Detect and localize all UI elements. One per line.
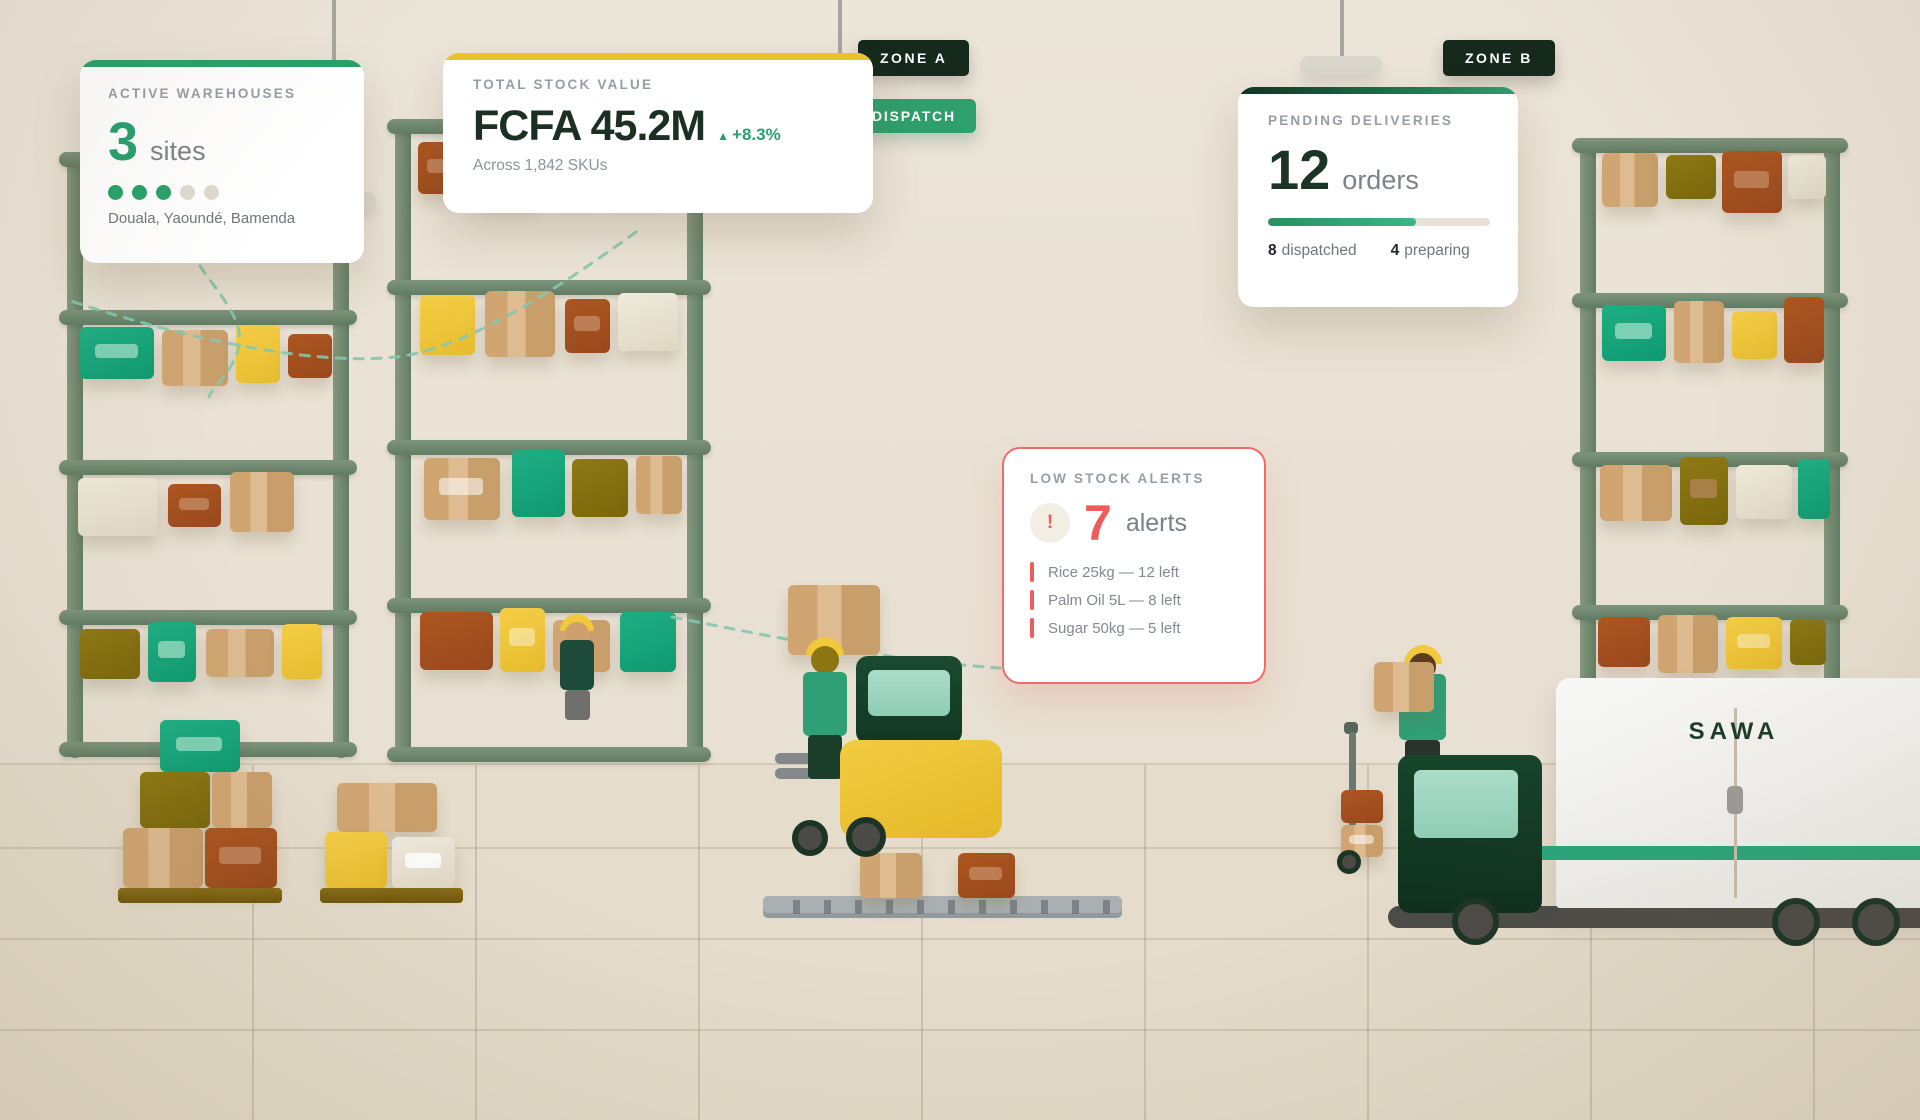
forklift-wheel <box>846 817 886 857</box>
stock-box <box>420 612 493 670</box>
trend-up-icon: ▲ <box>717 129 729 143</box>
stock-delta: ▲+8.3% <box>717 125 781 145</box>
stock-box <box>420 295 475 355</box>
box-label <box>439 478 483 495</box>
box-label <box>509 628 535 646</box>
shelf-bar <box>59 310 357 325</box>
total-stock-value-card: TOTAL STOCK VALUE FCFA 45.2M ▲+8.3% Acro… <box>443 53 873 213</box>
worker-torso <box>560 640 594 690</box>
stock-box <box>1732 311 1777 359</box>
stock-box <box>78 478 158 536</box>
deliveries-progress-bar <box>1268 218 1490 226</box>
stock-box <box>148 622 196 682</box>
trailer-stripe <box>1540 846 1920 860</box>
alerts-unit: alerts <box>1126 509 1187 538</box>
box-label <box>179 498 210 510</box>
stock-box <box>1602 153 1658 207</box>
card-accent-bar <box>443 53 873 60</box>
pending-deliveries-card: PENDING DELIVERIES 12 orders 8dispatched… <box>1238 87 1518 307</box>
stock-box <box>958 853 1015 898</box>
shelf-bar <box>387 598 711 613</box>
preparing-stat: 4preparing <box>1391 242 1470 260</box>
site-dot-filled <box>156 185 171 200</box>
stock-box <box>80 629 140 679</box>
alert-item-text: Rice 25kg — 12 left <box>1048 564 1179 581</box>
site-dots <box>108 185 340 200</box>
orders-unit: orders <box>1342 165 1419 196</box>
shelf-bar <box>59 610 357 625</box>
low-stock-alerts-card: LOW STOCK ALERTS ! 7 alerts Rice 25kg — … <box>1002 447 1266 684</box>
stock-box <box>636 456 682 514</box>
box-label <box>95 344 138 359</box>
stock-box <box>572 459 628 517</box>
worker-torso <box>803 672 847 736</box>
stock-box <box>236 325 280 383</box>
truck-brand-logo: SAWA <box>1689 718 1780 746</box>
zone-b-badge: ZONE B <box>1443 40 1555 76</box>
site-locations: Douala, Yaoundé, Bamenda <box>108 210 340 227</box>
truck-trailer: SAWA <box>1556 678 1920 908</box>
alert-item-bar <box>1030 618 1034 638</box>
card-title: PENDING DELIVERIES <box>1268 113 1490 128</box>
handtruck-wheel <box>1337 850 1361 874</box>
conveyor-slats <box>769 900 1116 914</box>
site-dot-empty <box>180 185 195 200</box>
alert-exclamation-icon: ! <box>1030 503 1070 543</box>
stock-box <box>162 330 228 386</box>
site-dot-filled <box>108 185 123 200</box>
card-title: LOW STOCK ALERTS <box>1030 471 1244 486</box>
alert-list-item: Rice 25kg — 12 left <box>1030 562 1244 582</box>
stock-box <box>512 450 565 517</box>
card-accent-bar <box>80 60 364 67</box>
stock-box <box>1798 459 1830 519</box>
trailer-door-handle <box>1727 786 1743 814</box>
stock-box <box>1726 617 1782 669</box>
shelf-unit <box>1580 138 1840 700</box>
stock-box <box>392 837 455 888</box>
stock-box <box>1680 457 1728 525</box>
box-label <box>405 853 442 867</box>
stock-box <box>123 828 203 888</box>
box-label <box>1615 323 1652 339</box>
stock-box <box>1674 301 1724 363</box>
stock-box <box>1658 615 1718 673</box>
alert-item-text: Palm Oil 5L — 8 left <box>1048 592 1181 609</box>
truck-wheel <box>1772 898 1820 946</box>
shelf-unit <box>395 119 703 760</box>
warehouse-dashboard: SAWA ZONE A ZONE B DISPATCH ACTIVE WAREH… <box>0 0 1920 1120</box>
alert-item-text: Sugar 50kg — 5 left <box>1048 620 1181 637</box>
stock-box <box>288 334 332 378</box>
zone-a-badge: ZONE A <box>858 40 969 76</box>
stock-box <box>206 629 274 677</box>
worker-head <box>811 646 839 674</box>
stock-box <box>620 612 676 672</box>
shelf-bar <box>387 747 711 762</box>
site-dot-filled <box>132 185 147 200</box>
alerts-count: 7 <box>1084 498 1112 548</box>
stock-box <box>500 608 545 672</box>
truck-wheel <box>1452 898 1499 945</box>
box-label <box>219 847 261 864</box>
stock-box <box>1666 155 1716 199</box>
stock-box <box>860 853 922 898</box>
active-warehouses-card: ACTIVE WAREHOUSES 3 sites Douala, Yaound… <box>80 60 364 263</box>
stock-box <box>325 832 387 888</box>
worker-pants <box>808 735 842 779</box>
box-label <box>969 867 1002 880</box>
stock-box <box>230 472 294 532</box>
box-label <box>574 316 600 331</box>
alert-item-bar <box>1030 590 1034 610</box>
stock-box <box>1790 619 1826 665</box>
stock-box <box>160 720 240 772</box>
stock-box <box>424 458 500 520</box>
stock-box <box>618 293 678 351</box>
preparing-label: preparing <box>1404 242 1470 259</box>
alert-list: Rice 25kg — 12 leftPalm Oil 5L — 8 leftS… <box>1030 562 1244 638</box>
dispatched-count: 8 <box>1268 242 1277 259</box>
box-label <box>1349 835 1373 844</box>
stock-box <box>140 772 210 828</box>
forklift-windshield <box>868 670 950 716</box>
stock-box <box>205 828 277 888</box>
box-label <box>1737 634 1769 649</box>
stock-value: FCFA 45.2M <box>473 102 705 151</box>
truck-wheel <box>1852 898 1900 946</box>
forklift-wheel <box>792 820 828 856</box>
card-title: TOTAL STOCK VALUE <box>473 77 849 92</box>
stock-box <box>1788 155 1826 199</box>
site-dot-empty <box>204 185 219 200</box>
box-label <box>1690 479 1718 498</box>
stock-box <box>80 327 154 379</box>
stock-box <box>1602 305 1666 361</box>
worker-pants <box>565 690 590 720</box>
stock-box <box>1598 617 1650 667</box>
stock-box <box>1736 465 1792 519</box>
box-label <box>158 641 186 658</box>
pallet <box>118 888 282 903</box>
conveyor-belt <box>763 896 1122 918</box>
box-label <box>176 737 222 752</box>
stock-box <box>485 291 555 357</box>
stock-box <box>337 783 437 832</box>
dispatched-stat: 8dispatched <box>1268 242 1357 260</box>
orders-count: 12 <box>1268 142 1330 198</box>
stock-box <box>1341 790 1383 823</box>
stock-subtitle: Across 1,842 SKUs <box>473 157 849 175</box>
stock-box <box>168 484 221 527</box>
stock-box <box>1600 465 1672 521</box>
delta-value: +8.3% <box>732 125 781 144</box>
warehouse-unit: sites <box>150 136 206 167</box>
alert-list-item: Palm Oil 5L — 8 left <box>1030 590 1244 610</box>
card-title: ACTIVE WAREHOUSES <box>108 86 340 101</box>
alert-item-bar <box>1030 562 1034 582</box>
preparing-count: 4 <box>1391 242 1400 259</box>
deliveries-progress-fill <box>1268 218 1416 226</box>
warehouse-count: 3 <box>108 115 138 169</box>
stock-box <box>212 772 272 828</box>
pallet <box>320 888 463 903</box>
stock-box <box>565 299 610 353</box>
shelf-bar <box>59 460 357 475</box>
shelf-bar <box>1572 138 1848 153</box>
alert-list-item: Sugar 50kg — 5 left <box>1030 618 1244 638</box>
stock-box <box>1784 297 1824 363</box>
box-label <box>1734 171 1769 188</box>
stock-box <box>282 624 322 679</box>
dispatched-label: dispatched <box>1282 242 1357 259</box>
truck-windshield <box>1414 770 1518 838</box>
card-accent-bar <box>1238 87 1518 94</box>
stock-box <box>1722 151 1782 213</box>
carried-box <box>1374 662 1434 712</box>
